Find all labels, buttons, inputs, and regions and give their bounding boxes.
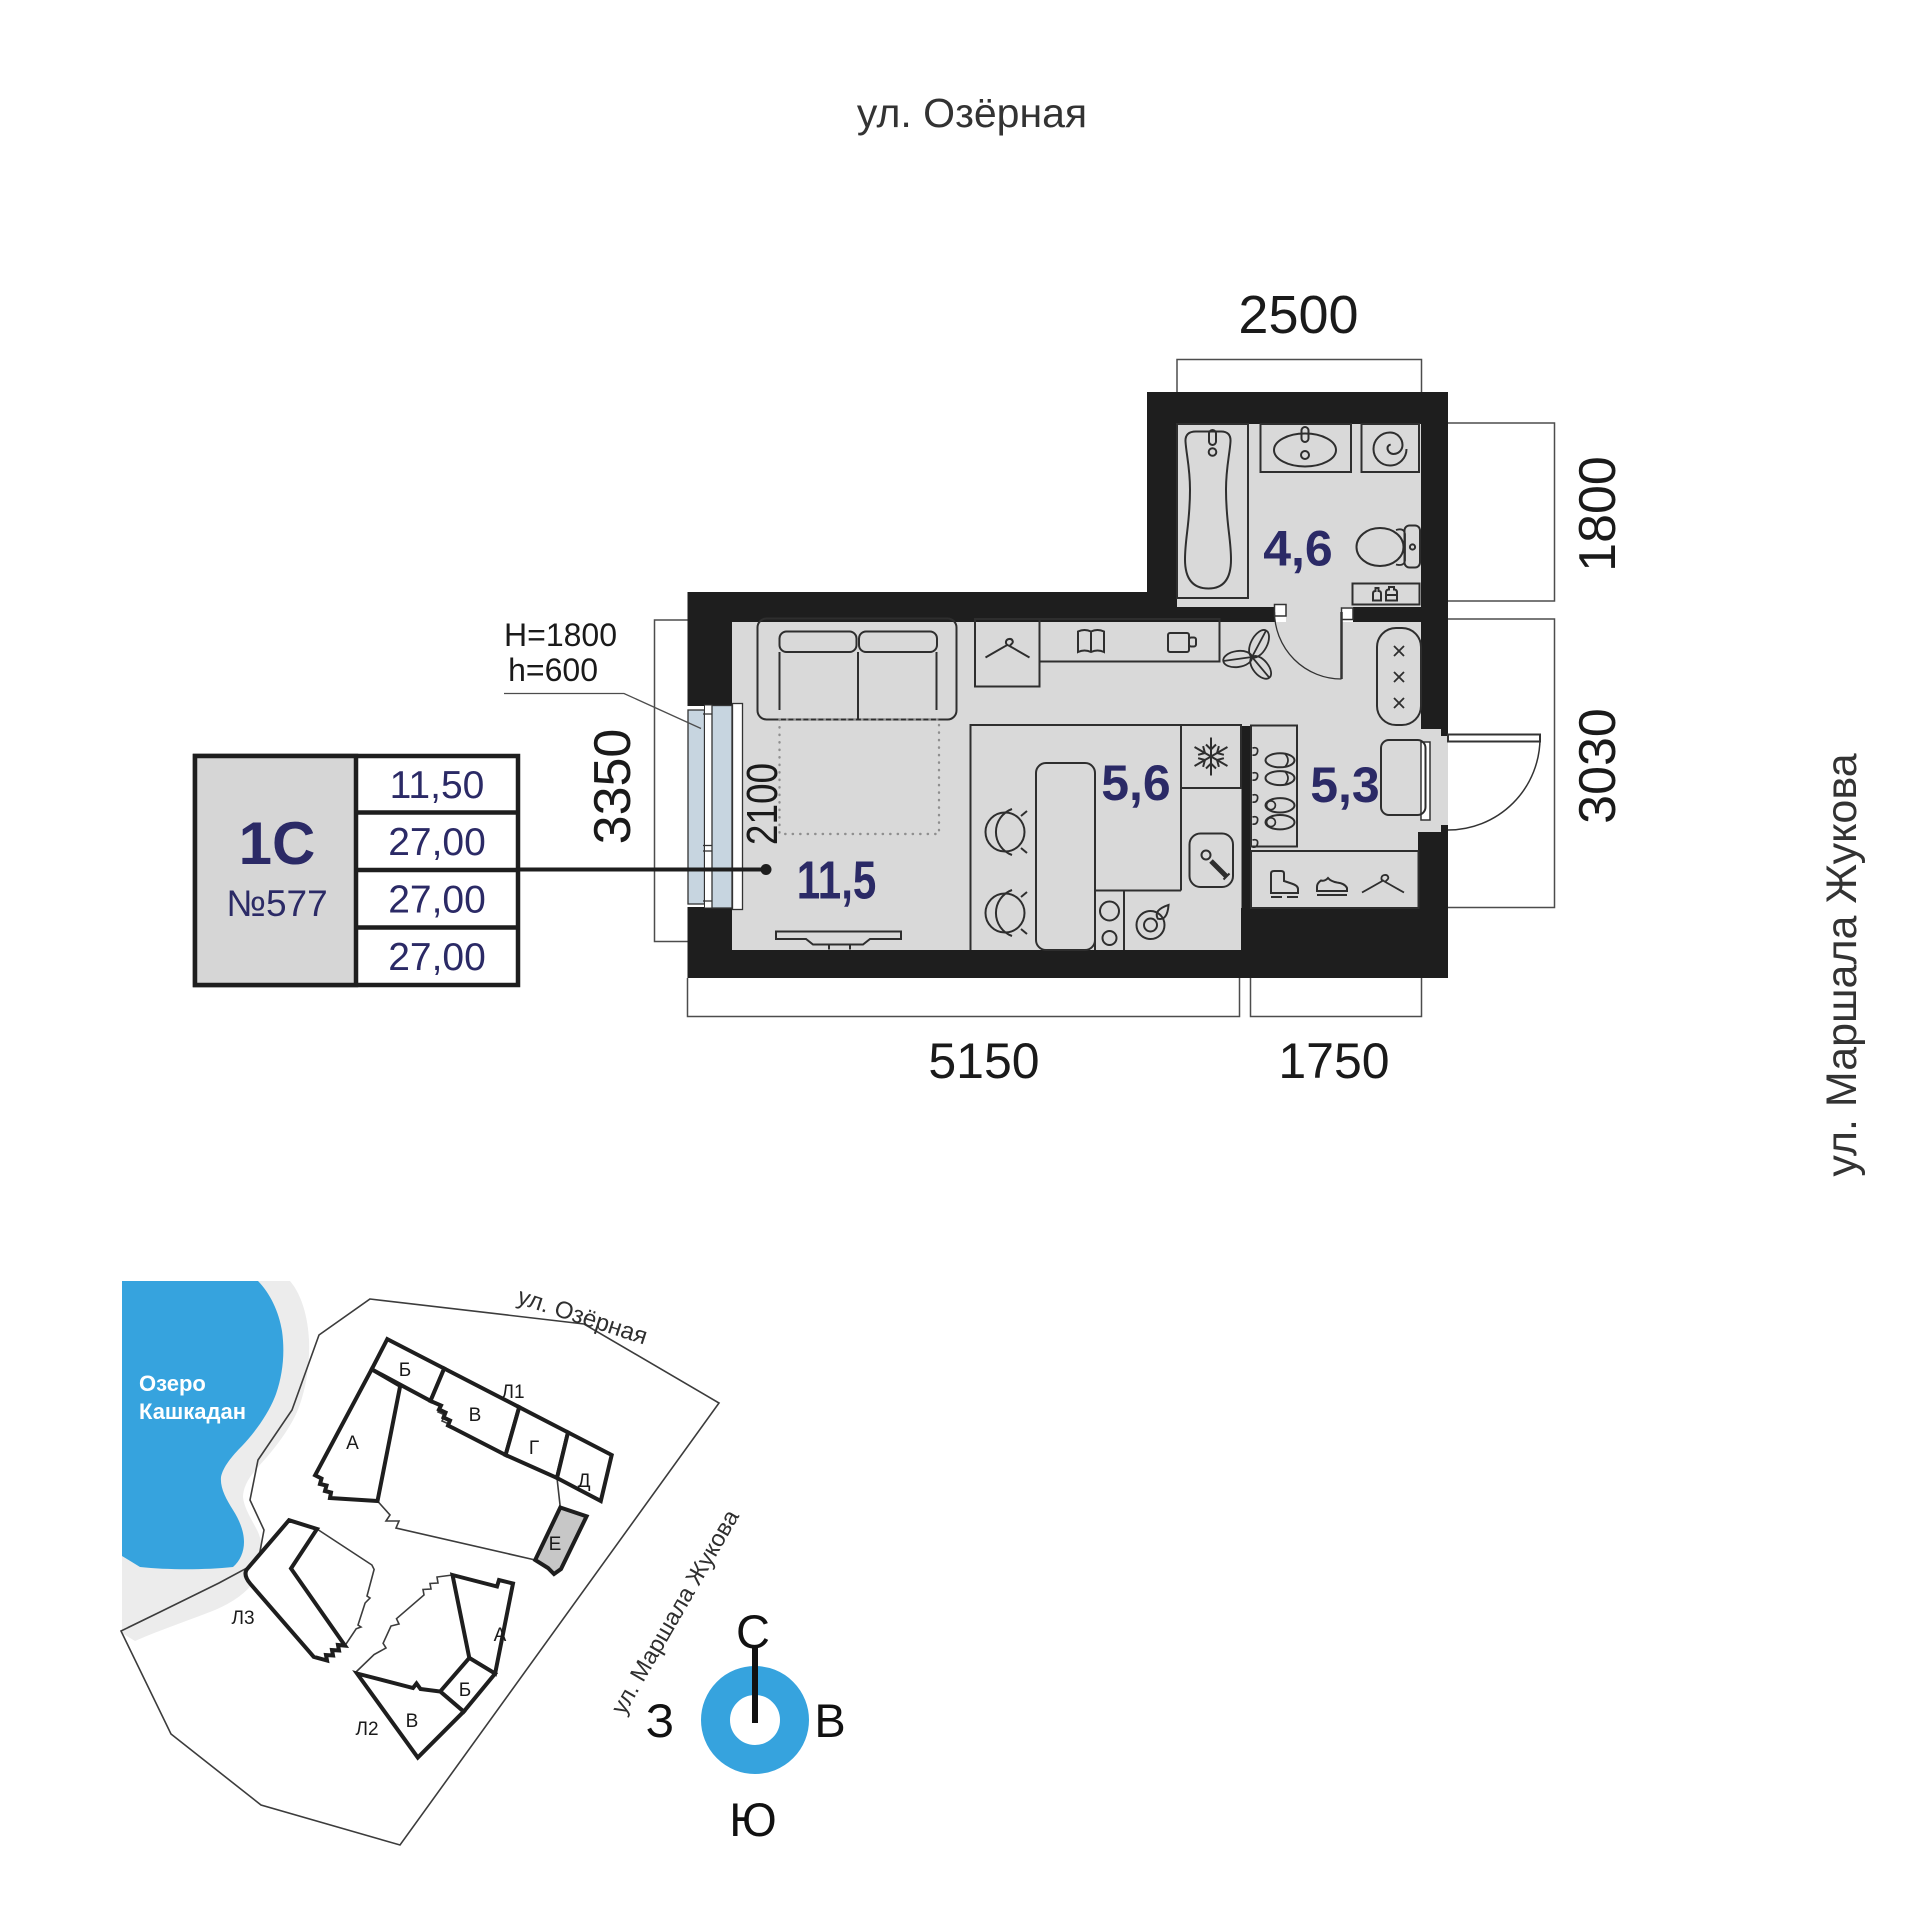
svg-text:1750: 1750 <box>1278 1033 1389 1089</box>
svg-text:1800: 1800 <box>1569 456 1627 572</box>
svg-text:Л3: Л3 <box>231 1608 254 1629</box>
svg-text:Озеро: Озеро <box>139 1371 206 1396</box>
svg-text:5150: 5150 <box>928 1033 1039 1089</box>
svg-text:Е: Е <box>549 1534 562 1555</box>
svg-text:Л2: Л2 <box>355 1719 378 1740</box>
svg-text:С: С <box>736 1605 770 1658</box>
svg-text:ул. Озёрная: ул. Озёрная <box>857 90 1087 136</box>
svg-text:H=1800: H=1800 <box>504 617 617 653</box>
svg-text:5,3: 5,3 <box>1310 757 1380 813</box>
svg-text:В: В <box>469 1405 482 1426</box>
svg-text:4,6: 4,6 <box>1263 521 1333 577</box>
svg-text:1С: 1С <box>239 810 316 877</box>
svg-text:3030: 3030 <box>1569 708 1627 824</box>
svg-text:2500: 2500 <box>1238 285 1358 345</box>
svg-text:Г: Г <box>529 1438 539 1459</box>
svg-text:27,00: 27,00 <box>388 879 486 922</box>
svg-text:Б: Б <box>399 1360 411 1381</box>
svg-text:А: А <box>494 1625 507 1646</box>
svg-text:Д: Д <box>578 1471 591 1492</box>
svg-text:В: В <box>406 1711 419 1732</box>
svg-text:№577: №577 <box>226 883 327 924</box>
svg-text:11,50: 11,50 <box>390 764 485 807</box>
svg-text:27,00: 27,00 <box>388 821 486 864</box>
svg-text:Б: Б <box>459 1680 471 1701</box>
svg-text:З: З <box>646 1694 674 1747</box>
svg-text:Ю: Ю <box>729 1793 776 1846</box>
svg-text:11,5: 11,5 <box>797 851 877 911</box>
svg-text:ул. Маршала Жукова: ул. Маршала Жукова <box>1818 753 1866 1176</box>
svg-text:5,6: 5,6 <box>1101 755 1171 811</box>
svg-text:3350: 3350 <box>584 729 642 845</box>
svg-text:h=600: h=600 <box>508 652 598 688</box>
svg-text:В: В <box>814 1694 845 1747</box>
svg-text:А: А <box>346 1433 359 1454</box>
svg-text:27,00: 27,00 <box>388 936 486 979</box>
svg-text:Л1: Л1 <box>501 1382 524 1403</box>
svg-text:Кашкадан: Кашкадан <box>139 1399 246 1424</box>
